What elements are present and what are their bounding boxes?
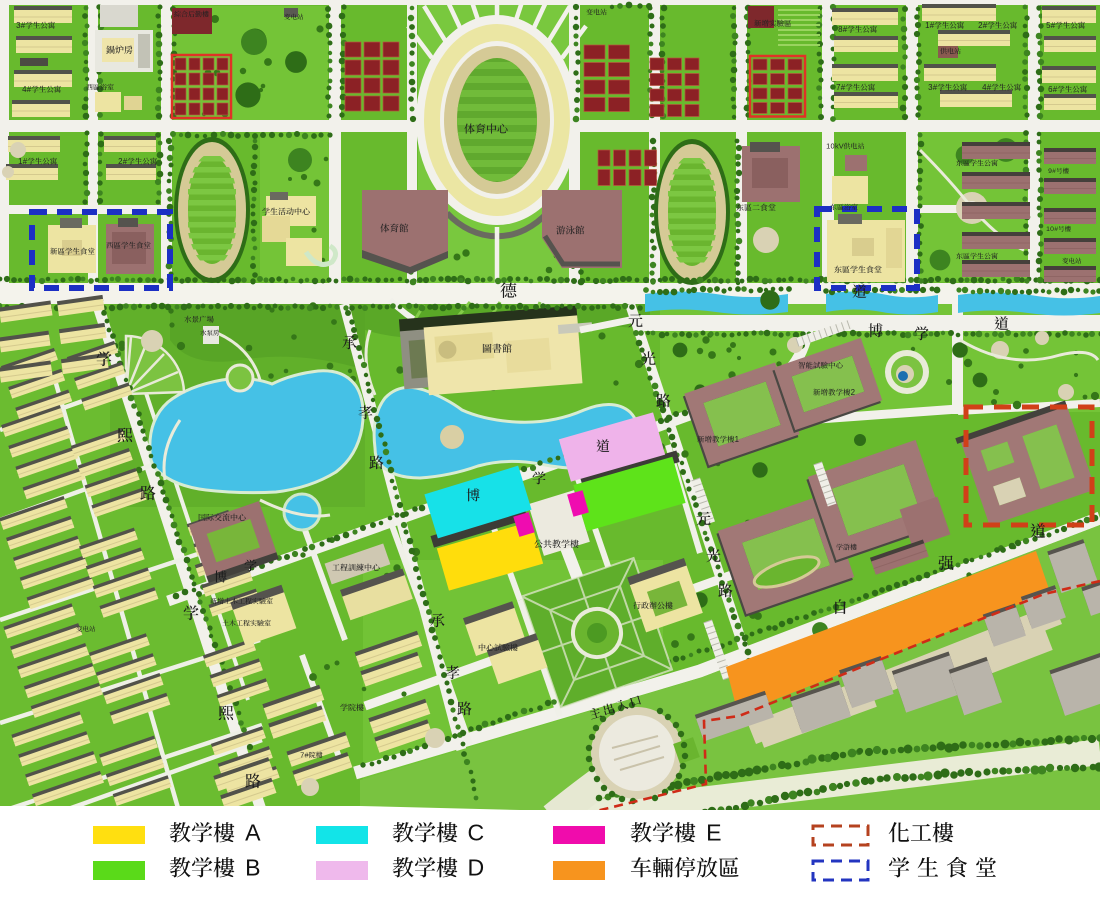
svg-text:#: # <box>843 25 848 34</box>
svg-text:A: A <box>245 820 261 846</box>
svg-text:#: # <box>21 21 26 30</box>
svg-text:E: E <box>706 820 721 846</box>
svg-text:1: 1 <box>735 435 739 444</box>
svg-text:#: # <box>1051 21 1056 30</box>
svg-text:#: # <box>23 157 28 166</box>
svg-text:B: B <box>245 855 260 881</box>
svg-text:C: C <box>467 820 484 846</box>
svg-text:#: # <box>933 83 938 92</box>
svg-text:#: # <box>841 83 846 92</box>
svg-text:#: # <box>1053 85 1058 94</box>
svg-text:#: # <box>987 83 992 92</box>
svg-text:2: 2 <box>851 388 855 397</box>
svg-text:V: V <box>839 142 844 151</box>
svg-text:#: # <box>1052 168 1056 175</box>
svg-text:#: # <box>27 85 32 94</box>
svg-text:#: # <box>930 21 935 30</box>
svg-text:D: D <box>467 855 484 881</box>
svg-text:#: # <box>1054 226 1058 233</box>
svg-text:#: # <box>123 157 128 166</box>
svg-text:#: # <box>983 21 988 30</box>
svg-text:0: 0 <box>830 142 834 151</box>
